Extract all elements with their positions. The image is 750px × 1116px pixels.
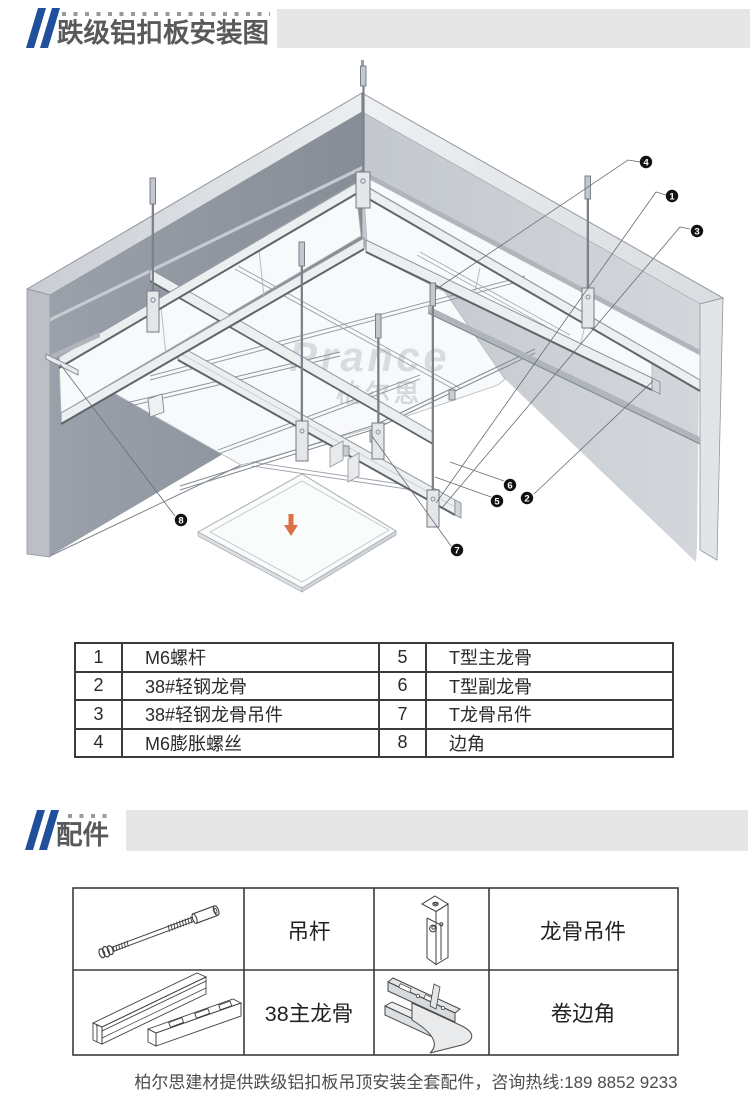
svg-text:38主龙骨: 38主龙骨 [265,1002,353,1026]
svg-text:6: 6 [507,481,512,492]
svg-text:5: 5 [494,497,500,508]
svg-text:卷边角: 卷边角 [551,1002,616,1026]
svg-text:龙骨吊件: 龙骨吊件 [540,920,626,944]
svg-text:3: 3 [694,227,699,238]
svg-text:吊杆: 吊杆 [287,920,330,944]
svg-text:1: 1 [669,192,675,203]
svg-text:8: 8 [178,516,183,527]
svg-text:4: 4 [643,158,649,169]
svg-text:2: 2 [524,494,529,505]
svg-text:7: 7 [454,546,459,557]
